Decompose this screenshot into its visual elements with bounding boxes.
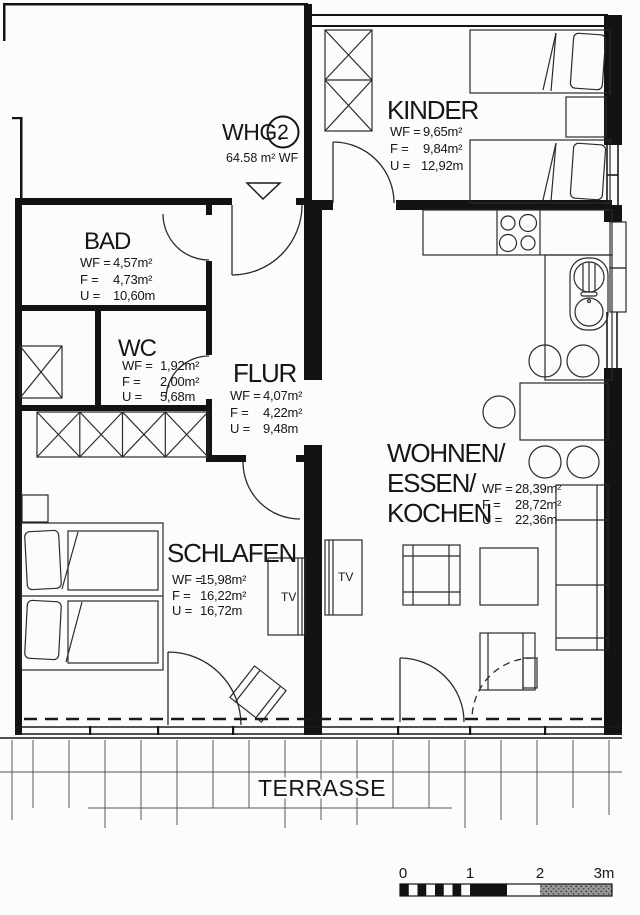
stat-value-f: 16,22m² bbox=[200, 588, 247, 603]
apartment-area: 64.58 m² WF bbox=[226, 151, 299, 165]
stat-key-wf: WF = bbox=[230, 388, 261, 403]
stat-key-f: F = bbox=[172, 588, 191, 603]
stat-key-u: U = bbox=[122, 389, 142, 404]
stat-value-u: 16,72m bbox=[200, 603, 242, 618]
stat-key-wf: WF = bbox=[80, 255, 111, 270]
tv-label-wohnen: TV bbox=[338, 570, 353, 584]
scale-tick-3m: 3m bbox=[594, 865, 615, 882]
room-label-wohnen: WOHNEN/ ESSEN/ KOCHEN WF = 28,39m² F = 2… bbox=[387, 438, 562, 528]
stat-key-wf: WF = bbox=[172, 572, 203, 587]
tv-label-schlafen: TV bbox=[281, 590, 296, 604]
stat-value-f: 28,72m² bbox=[515, 497, 562, 512]
scale-tick-2: 2 bbox=[536, 865, 544, 882]
walls bbox=[3, 3, 622, 735]
stat-value-u: 5,68m bbox=[160, 389, 195, 404]
stat-value-f: 4,73m² bbox=[113, 272, 153, 287]
floorplan-canvas: WHG. 2 64.58 m² WF KINDER WF = 9,65m² F … bbox=[0, 0, 640, 915]
stat-key-u: U = bbox=[482, 512, 502, 527]
stat-key-u: U = bbox=[230, 421, 250, 436]
stat-key-u: U = bbox=[390, 158, 410, 173]
apartment-label: WHG. bbox=[222, 119, 283, 145]
room-label-kinder: KINDER WF = 9,65m² F = 9,84m² U = 12,92m bbox=[387, 95, 478, 173]
kinder-door bbox=[333, 142, 394, 203]
schlafen-terrace-door bbox=[168, 652, 241, 725]
apartment-number: 2 bbox=[277, 121, 289, 144]
room-label-schlafen: SCHLAFEN WF = 15,98m² F = 16,22m² U = 16… bbox=[167, 538, 296, 618]
stat-key-f: F = bbox=[80, 272, 99, 287]
stove-icon bbox=[500, 215, 537, 252]
stat-value-f: 9,84m² bbox=[423, 141, 463, 156]
stat-key-u: U = bbox=[80, 288, 100, 303]
terrace-label: TERRASSE bbox=[258, 775, 386, 801]
stat-value-f: 4,22m² bbox=[263, 405, 303, 420]
stat-key-wf: WF = bbox=[390, 124, 421, 139]
stat-value-wf: 9,65m² bbox=[423, 124, 463, 139]
stat-value-u: 10,60m bbox=[113, 288, 155, 303]
kitchen-sink-icon bbox=[570, 258, 608, 330]
entrance-arrow-icon bbox=[247, 183, 280, 199]
kinder-bed-1 bbox=[470, 30, 610, 93]
armchair-1 bbox=[403, 545, 460, 605]
tilted-chair bbox=[230, 666, 286, 722]
stat-key-f: F = bbox=[122, 374, 141, 389]
room-name: FLUR bbox=[233, 358, 297, 388]
stat-value-wf: 4,07m² bbox=[263, 388, 303, 403]
kinder-nightstand bbox=[566, 97, 606, 137]
room-name-line1: WOHNEN/ bbox=[387, 438, 506, 468]
stat-value-wf: 1,92m² bbox=[160, 358, 200, 373]
sofa bbox=[556, 485, 608, 650]
kinder-bed-2 bbox=[470, 140, 610, 203]
title-block: WHG. 2 64.58 m² WF bbox=[222, 117, 299, 166]
armchair-2 bbox=[480, 633, 537, 690]
stat-value-f: 2,00m² bbox=[160, 374, 200, 389]
stat-key-wf: WF = bbox=[482, 481, 513, 496]
room-name: SCHLAFEN bbox=[167, 538, 296, 568]
floorplan-drawing: WHG. 2 64.58 m² WF KINDER WF = 9,65m² F … bbox=[0, 0, 640, 915]
stat-key-wf: WF = bbox=[122, 358, 153, 373]
doors bbox=[163, 142, 533, 725]
stat-key-u: U = bbox=[172, 603, 192, 618]
stat-value-wf: 15,98m² bbox=[200, 572, 247, 587]
room-label-bad: BAD WF = 4,57m² F = 4,73m² U = 10,60m bbox=[80, 228, 155, 303]
entry-door bbox=[232, 205, 302, 275]
coffee-table bbox=[480, 548, 538, 605]
scale-tick-1: 1 bbox=[466, 865, 474, 882]
stat-value-u: 22,36m bbox=[515, 512, 557, 527]
dining-table bbox=[520, 383, 608, 440]
room-name: KINDER bbox=[387, 95, 478, 125]
schlafen-door bbox=[243, 462, 300, 519]
kinder-wardrobe bbox=[325, 30, 372, 131]
stat-value-u: 12,92m bbox=[421, 158, 463, 173]
stat-key-f: F = bbox=[390, 141, 409, 156]
scale-tick-0: 0 bbox=[399, 865, 407, 882]
room-name: BAD bbox=[84, 228, 131, 255]
scale-bar: 0 1 2 3m bbox=[399, 865, 615, 896]
kitchen-counter bbox=[423, 210, 612, 380]
bad-door bbox=[163, 214, 209, 260]
chimney-shaft-icon bbox=[20, 346, 62, 398]
wall-pier bbox=[22, 495, 48, 522]
stat-value-wf: 28,39m² bbox=[515, 481, 562, 496]
stat-key-f: F = bbox=[482, 497, 501, 512]
room-label-flur: FLUR WF = 4,07m² F = 4,22m² U = 9,48m bbox=[230, 358, 303, 436]
schlafen-wardrobe bbox=[37, 412, 208, 457]
stat-key-f: F = bbox=[230, 405, 249, 420]
room-name-line2: ESSEN/ bbox=[387, 468, 477, 498]
stat-value-wf: 4,57m² bbox=[113, 255, 153, 270]
double-bed bbox=[21, 523, 163, 670]
stat-value-u: 9,48m bbox=[263, 421, 298, 436]
room-name-line3: KOCHEN bbox=[387, 498, 491, 528]
room-label-wc: WC WF = 1,92m² F = 2,00m² U = 5,68m bbox=[118, 335, 200, 404]
